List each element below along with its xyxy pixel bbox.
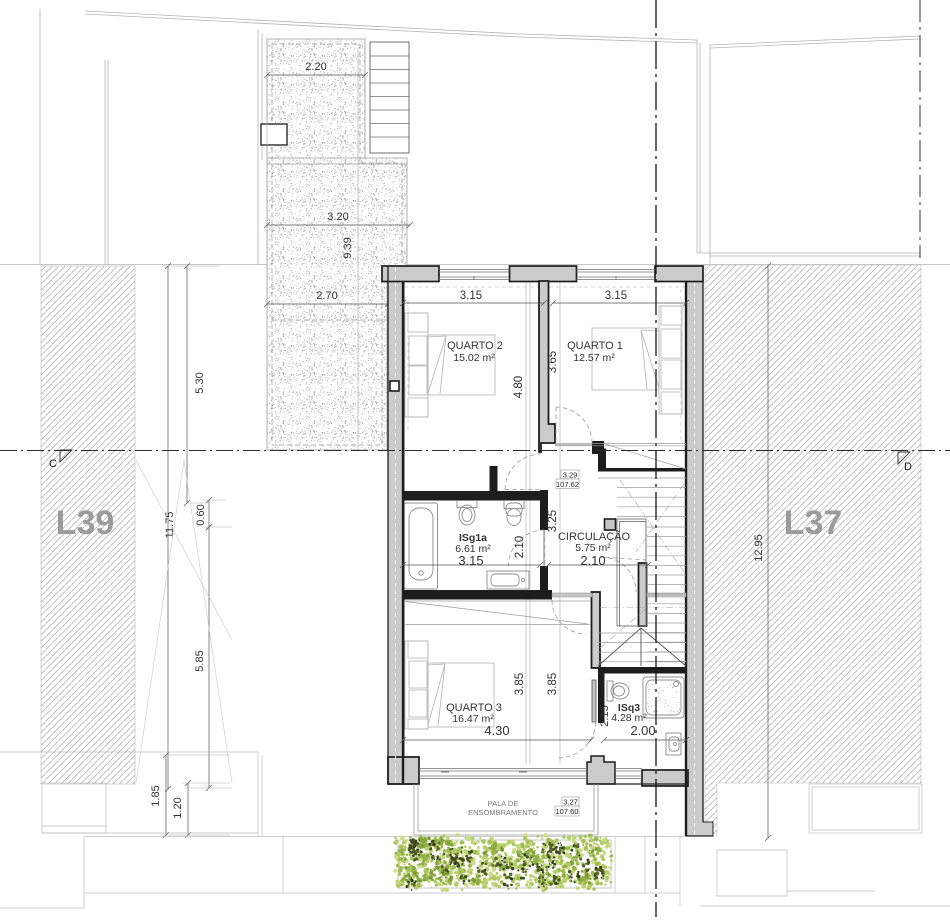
svg-text:107.62: 107.62 (556, 480, 579, 489)
svg-text:2.15: 2.15 (599, 705, 611, 726)
svg-text:15.02 m²: 15.02 m² (453, 352, 495, 364)
svg-text:3.27: 3.27 (563, 798, 578, 807)
svg-text:3.65: 3.65 (547, 351, 559, 373)
svg-text:3.15: 3.15 (460, 290, 482, 302)
svg-text:3.29: 3.29 (563, 471, 578, 480)
svg-text:C: C (49, 458, 57, 470)
svg-text:2.70: 2.70 (316, 290, 337, 302)
svg-text:4.80: 4.80 (513, 376, 525, 398)
svg-text:QUARTO 2: QUARTO 2 (447, 340, 503, 352)
svg-text:3.15: 3.15 (605, 290, 627, 302)
svg-text:QUARTO 1: QUARTO 1 (567, 340, 623, 352)
svg-text:3.20: 3.20 (327, 211, 348, 223)
svg-text:9.39: 9.39 (342, 237, 354, 258)
svg-text:D: D (904, 461, 912, 473)
svg-text:2.20: 2.20 (305, 61, 326, 73)
svg-text:5.30: 5.30 (194, 372, 206, 393)
svg-text:ENSOMBRAMENTO: ENSOMBRAMENTO (468, 808, 538, 817)
svg-text:107.60: 107.60 (556, 807, 579, 816)
svg-text:0.60: 0.60 (195, 504, 207, 525)
svg-text:3.15: 3.15 (458, 553, 483, 568)
svg-text:2.00: 2.00 (630, 723, 655, 738)
svg-text:12.57 m²: 12.57 m² (573, 352, 615, 364)
svg-text:3.25: 3.25 (547, 510, 559, 532)
svg-text:1.85: 1.85 (150, 785, 162, 806)
svg-text:2.10: 2.10 (580, 553, 605, 568)
svg-text:2.10: 2.10 (514, 536, 526, 558)
svg-text:3.85: 3.85 (514, 673, 526, 695)
svg-text:1.20: 1.20 (172, 797, 184, 818)
svg-text:L37: L37 (784, 504, 843, 542)
svg-text:L39: L39 (56, 504, 115, 542)
svg-text:PALA DE: PALA DE (488, 799, 519, 808)
svg-text:5.85: 5.85 (194, 650, 206, 671)
svg-text:3.85: 3.85 (547, 673, 559, 695)
svg-text:4.30: 4.30 (484, 723, 509, 738)
svg-text:12.95: 12.95 (753, 534, 765, 562)
